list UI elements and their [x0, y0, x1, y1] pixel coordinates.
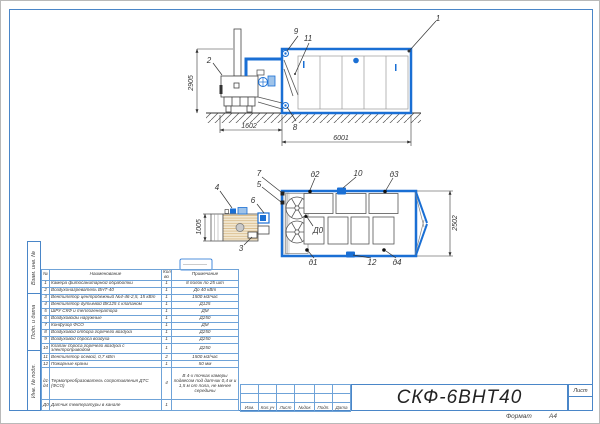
cell-note: 50 мм: [172, 361, 239, 368]
cell-name: Вентилятор дутьевой ВК125 с клапаном: [50, 301, 162, 308]
table-row: 11Вентилятор осевой, 0,7 кВт21500 м3/час: [42, 354, 239, 361]
cell-num: 12: [42, 361, 50, 368]
cell-name: Клапан сброса горячего воздуха с электро…: [50, 343, 162, 354]
cell-note: Д250: [172, 336, 239, 343]
sensor-d2-dot: [308, 190, 312, 194]
col-name: Наименование: [50, 270, 162, 281]
cell-qty: 1: [162, 343, 172, 354]
parts-table: № Наименование Кол-во Примечание 1Камера…: [41, 269, 239, 411]
burner-fitting: [230, 209, 236, 214]
cell-num: 10: [42, 343, 50, 354]
cell-num: 3: [42, 294, 50, 301]
rev-label-podp: Подп.: [314, 402, 333, 412]
boiler-body: [221, 76, 258, 97]
doc-number: СКФ-6ВНТ40: [397, 387, 523, 409]
cell-name: Воздуховод сброса воздуха: [50, 336, 162, 343]
table-row: 4Вентилятор дутьевой ВК125 с клапаном1Д1…: [42, 301, 239, 308]
cell-qty: 4: [162, 368, 172, 400]
sensor-d3-dot: [383, 190, 387, 194]
table-row: 3Вентилятор центробежный №4-46-2,5, 15 к…: [42, 294, 239, 301]
cell-qty: 2: [162, 354, 172, 361]
cell-qty: 1: [162, 308, 172, 315]
dim-depth: 1005: [196, 219, 203, 235]
cell-name: Воздуховоды наружные: [50, 315, 162, 322]
rev-label-list: Лист: [276, 402, 295, 412]
cell-qty: 1: [162, 315, 172, 322]
dim-width: 2502: [452, 215, 459, 232]
plan-view: 4 7 5 6 3 д2 10 д3 д1 12 д4 Д0 1005 2502: [180, 169, 459, 270]
rev-label-koluch: Кол.уч: [258, 402, 277, 412]
cell-note: ДМ: [172, 308, 239, 315]
chimney: [234, 29, 241, 76]
table-row: 2Воздухонагреватель ВНТ-401До 40 кВт: [42, 287, 239, 294]
sensor-d4-dot: [382, 248, 386, 252]
cell-qty: 1: [162, 336, 172, 343]
revision-grid: Изм. Кол.уч Лист №док Подп. Дата: [241, 384, 351, 411]
table-row: 9Воздуховод сброса воздуха1Д250: [42, 336, 239, 343]
cell-note: Д250: [172, 315, 239, 322]
sensor-mark: [395, 64, 397, 71]
pallet-compartments: [304, 194, 398, 245]
cell-qty: 1: [162, 280, 172, 287]
cell-note: Д250: [172, 329, 239, 336]
dim-left-width: 1602: [241, 123, 257, 130]
table-row: 7Конфузор ФСО1ДМ: [42, 322, 239, 329]
col-num: №: [42, 270, 50, 281]
cell-note: ДМ: [172, 322, 239, 329]
duct-port-top: [281, 192, 285, 196]
callout-10: 10: [354, 169, 363, 178]
cell-note: Д250: [172, 343, 239, 354]
boiler-base: [224, 97, 255, 106]
callout-6: 6: [251, 196, 256, 205]
cell-qty: 1: [162, 294, 172, 301]
callout-9: 9: [294, 27, 299, 36]
col-qty: Кол-во: [162, 270, 172, 281]
relief-valve-bottom: [346, 252, 355, 258]
sensor-mark: [303, 61, 305, 68]
boiler-leg: [226, 106, 231, 112]
table-row: 6Воздуховоды наружные1Д250: [42, 315, 239, 322]
cell-note: [172, 400, 239, 411]
callout-12: 12: [368, 258, 377, 267]
table-row: Д0Датчик температуры в канале1: [42, 400, 239, 411]
format-label: Формат: [506, 413, 532, 420]
cell-name: ШРУ СКФ и теплогенератора: [50, 308, 162, 315]
boiler-leg: [247, 106, 252, 112]
callout-d3: д3: [390, 170, 399, 179]
callout-target-dot: [294, 73, 296, 75]
callout-2: 2: [206, 56, 212, 65]
callout-4: 4: [215, 183, 220, 192]
rev-label-izm: Изм.: [240, 402, 259, 412]
callout-3: 3: [239, 244, 244, 253]
cell-qty: 1: [162, 287, 172, 294]
cell-name: Вентилятор центробежный №4-46-2,5, 15 кВ…: [50, 294, 162, 301]
cell-note: До 40 кВт: [172, 287, 239, 294]
cell-num: Д0: [42, 400, 50, 411]
callout-7: 7: [257, 169, 262, 178]
rev-label-ndok: №док: [294, 402, 315, 412]
ground-hatch: [206, 113, 421, 123]
cell-qty: 1: [162, 322, 172, 329]
table-row: 8Воздуховод отбора горячего воздуха1Д250: [42, 329, 239, 336]
callout-d1: д1: [309, 258, 318, 267]
heat-generator-side: [220, 29, 259, 112]
cell-num: 9: [42, 336, 50, 343]
cell-num: 8: [42, 329, 50, 336]
cell-num: 7: [42, 322, 50, 329]
table-row: 5ШРУ СКФ и теплогенератора1ДМ: [42, 308, 239, 315]
sheet-label: Лист: [573, 388, 587, 394]
table-row: д1-д4Термопреобразователь сопротивления …: [42, 368, 239, 400]
cell-num: 2: [42, 287, 50, 294]
cell-num: 4: [42, 301, 50, 308]
side-view: 1 2 9 11 8 2905 1602 6001: [188, 14, 440, 146]
cell-name: Воздухонагреватель ВНТ-40: [50, 287, 162, 294]
cell-note: Д125: [172, 301, 239, 308]
cell-name: Пожарные краны: [50, 361, 162, 368]
format-value: А4: [549, 413, 557, 420]
callout-5: 5: [257, 180, 262, 189]
cell-num: 6: [42, 315, 50, 322]
burner-fitting: [238, 208, 247, 215]
cell-name: Датчик температуры в канале: [50, 400, 162, 411]
drawing-sheet: Взам. инв. № Подп. и дата Инв. № подл.: [0, 0, 600, 424]
cell-note: 8 полок по 25 шт: [172, 280, 239, 287]
cell-name: Конфузор ФСО: [50, 322, 162, 329]
relief-valve-top: [337, 188, 346, 195]
parts-table-header: № Наименование Кол-во Примечание: [42, 270, 239, 281]
sheet-number-cell: [568, 396, 593, 411]
table-row: 12Пожарные краны150 мм: [42, 361, 239, 368]
pump-assembly: [257, 70, 275, 87]
cell-note: 1500 м3/час: [172, 354, 239, 361]
callout-11: 11: [304, 34, 312, 43]
duct-port-bottom: [281, 201, 285, 205]
cell-name: Камера фитосанитарной обработки: [50, 280, 162, 287]
boiler-door-handle: [220, 85, 223, 94]
roof-fitting: [353, 58, 359, 64]
container-side: [282, 49, 411, 113]
cell-num: 5: [42, 308, 50, 315]
cell-num: 11: [42, 354, 50, 361]
callout-8: 8: [293, 123, 298, 132]
table-row: 1Камера фитосанитарной обработки18 полок…: [42, 280, 239, 287]
dim-height: 2905: [188, 75, 195, 92]
rev-label-data: Дата: [332, 402, 351, 412]
cell-num: д1-д4: [42, 368, 50, 400]
callout-d2: д2: [311, 170, 320, 179]
cell-name: Термопреобразователь сопротивления ДТС (…: [50, 368, 162, 400]
title-block: СКФ-6ВНТ40: [351, 384, 568, 411]
cell-qty: 1: [162, 361, 172, 368]
callout-d0: Д0: [312, 226, 324, 235]
cell-name: Воздуховод отбора горячего воздуха: [50, 329, 162, 336]
cell-qty: 1: [162, 301, 172, 308]
callout-d4: д4: [393, 258, 402, 267]
dim-length: 6001: [333, 135, 349, 142]
callout-1: 1: [436, 14, 440, 23]
cell-name: Вентилятор осевой, 0,7 кВт: [50, 354, 162, 361]
cell-num: 1: [42, 280, 50, 287]
cell-qty: 1: [162, 329, 172, 336]
col-note: Примечание: [172, 270, 239, 281]
table-row: 10Клапан сброса горячего воздуха с элект…: [42, 343, 239, 354]
cell-note: 1500 м3/час: [172, 294, 239, 301]
cell-qty: 1: [162, 400, 172, 411]
cell-note: В 4-х точках камеры подвесом под датчик …: [172, 368, 239, 400]
